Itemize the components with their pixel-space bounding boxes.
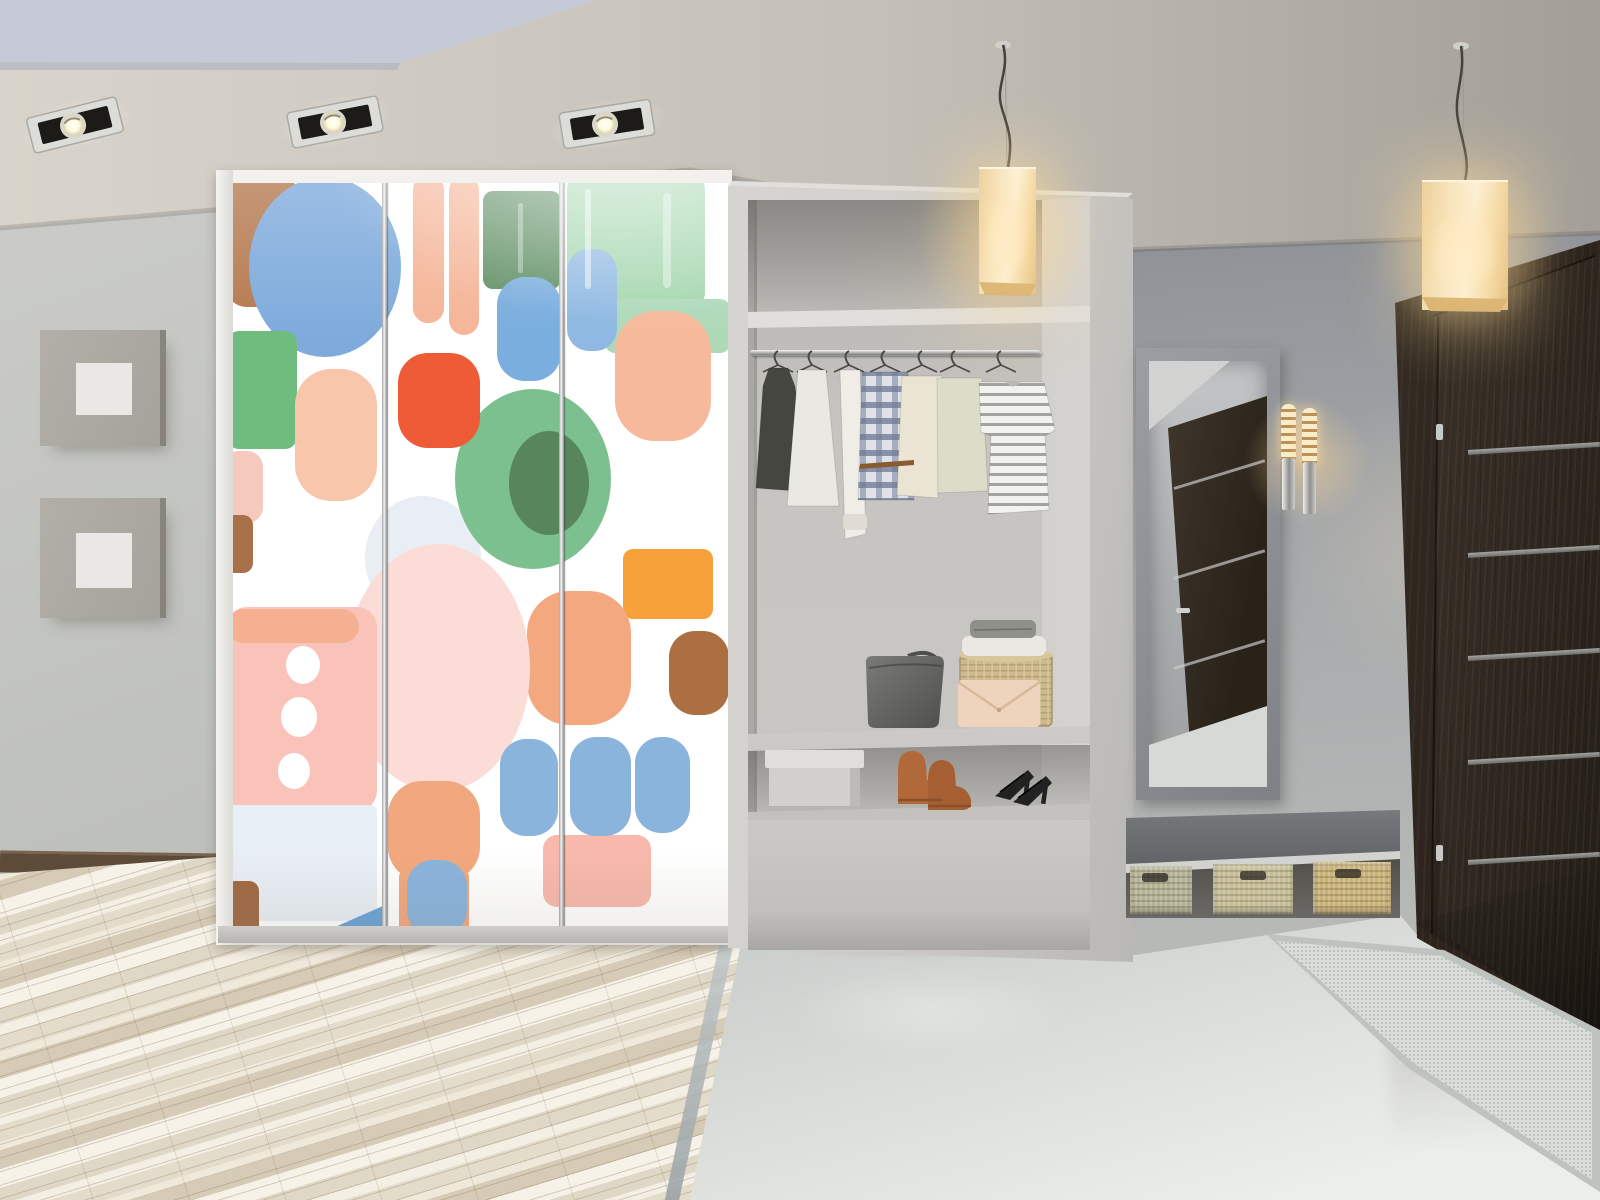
paint-blob — [585, 189, 591, 289]
wicker-basket — [1313, 862, 1391, 914]
paint-blob — [509, 431, 589, 535]
sconce-lamp-glass — [1302, 408, 1317, 464]
lamp-bottom-face — [1422, 297, 1508, 312]
paint-blob — [570, 737, 631, 836]
frame-side-edge — [160, 330, 166, 446]
frame-inner-square — [76, 363, 132, 415]
wall-sconce — [1262, 392, 1352, 532]
cube-pendant-lamp — [979, 167, 1036, 294]
paint-blob — [295, 369, 377, 501]
black-strappy-heels — [995, 770, 1052, 806]
reflection-door-handle — [1176, 608, 1190, 613]
door-hinge-icon — [1436, 424, 1443, 440]
paint-blob — [233, 331, 297, 449]
brown-leather-boots — [898, 751, 971, 810]
wardrobe-bottom-rail — [218, 926, 730, 943]
reflection-metal-strip — [1174, 639, 1266, 670]
doormat — [1260, 925, 1600, 1200]
paint-blob — [527, 591, 631, 725]
white-dress — [787, 351, 839, 506]
basket-handle-slot — [1240, 871, 1266, 880]
beige-clutch — [958, 680, 1040, 727]
door-hinge-icon — [1436, 845, 1443, 861]
reflection-metal-strip — [1174, 549, 1266, 580]
sconce-lamp-body — [1303, 462, 1316, 514]
wicker-basket — [1130, 866, 1192, 914]
entrance-door — [1390, 230, 1600, 1045]
wall-art-square-frame — [40, 498, 166, 618]
wicker-basket — [1213, 864, 1293, 914]
sconce-lamp-body — [1282, 458, 1295, 510]
closet-base-panel — [748, 820, 1090, 950]
wardrobe-frame-edge — [216, 170, 233, 945]
paint-blob — [407, 860, 467, 936]
door-divider — [559, 183, 564, 938]
white-storage-box — [765, 750, 864, 806]
mirror-glass — [1149, 361, 1267, 787]
hallway-interior-photo — [0, 0, 1600, 1200]
paint-blob — [663, 193, 671, 288]
paint-blob — [635, 737, 690, 833]
paint-blob — [398, 353, 480, 448]
paint-blob — [567, 249, 617, 351]
sliding-door-wardrobe — [216, 170, 732, 948]
paint-blob — [278, 753, 310, 789]
lamp-bottom-face — [979, 282, 1036, 296]
recessed-panel-edge — [0, 62, 400, 70]
folded-clothes — [962, 620, 1046, 656]
paint-blob — [500, 739, 558, 836]
paint-blob — [413, 183, 444, 323]
shoes-and-box — [748, 736, 1078, 820]
robe-cuff — [843, 514, 867, 530]
paint-blob — [449, 183, 479, 335]
wardrobe-abstract-art-doors[interactable] — [233, 183, 728, 938]
paint-blob — [518, 203, 523, 273]
paint-blob — [623, 549, 713, 619]
paint-blob — [233, 515, 253, 573]
basket-handle-slot — [1142, 873, 1168, 882]
paint-blob — [615, 311, 711, 441]
shelf-items — [748, 610, 1068, 750]
gray-handbag — [866, 653, 944, 728]
cube-pendant-lamp — [1422, 180, 1508, 310]
baseboard — [0, 850, 228, 875]
basket-handle-slot — [1335, 869, 1361, 878]
paint-blob — [286, 646, 320, 684]
sconce-lamp-glass — [1281, 404, 1296, 460]
wall-art-square-frame — [40, 330, 166, 446]
frame-inner-square — [76, 533, 132, 588]
paint-blob — [233, 609, 359, 643]
paint-blob — [249, 183, 401, 357]
door-divider — [382, 183, 387, 938]
reflection-metal-strip — [1174, 459, 1266, 490]
paint-blob — [281, 697, 317, 737]
hanging-clothes — [748, 338, 1090, 580]
striped-tee — [979, 351, 1055, 514]
paint-blob — [497, 277, 561, 381]
paint-blob — [233, 451, 263, 523]
frame-side-edge — [160, 498, 166, 618]
